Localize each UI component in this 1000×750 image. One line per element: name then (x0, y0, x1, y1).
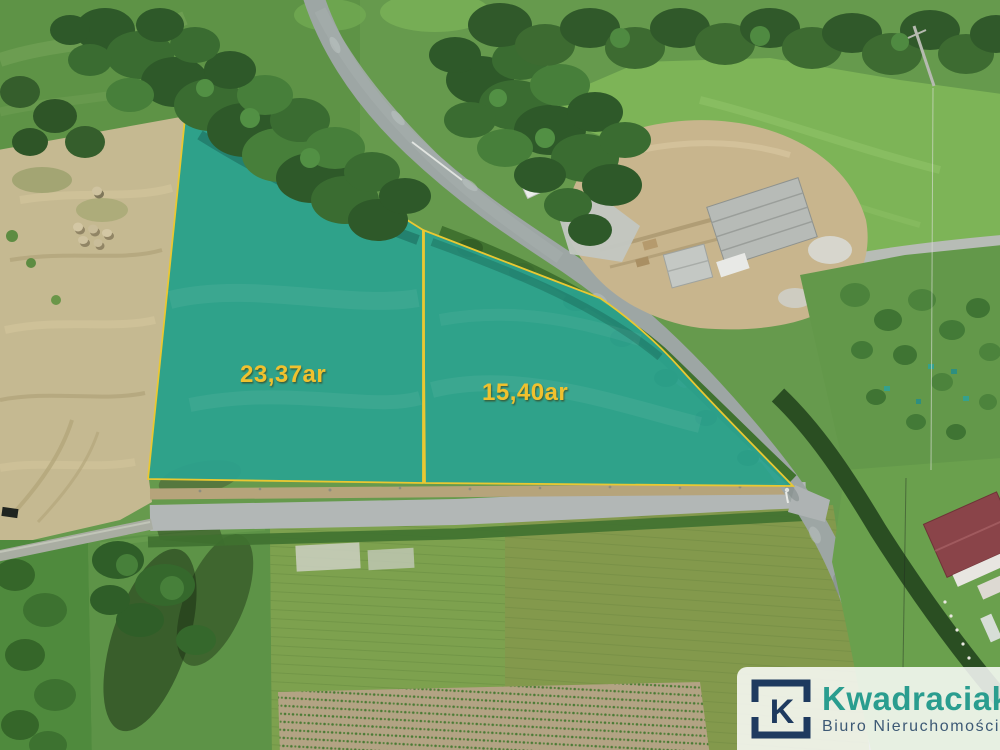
plot-1-area-label: 23,37ar (240, 361, 326, 388)
aerial-photo: 23,37ar 15,40ar K Kwadraciak Biuro Nieru… (0, 0, 1000, 750)
logo-company-name: Kwadraciak (822, 682, 1000, 715)
rubble-pile (808, 236, 852, 264)
logo-k-square-icon: K (751, 679, 811, 739)
logo-text-block: Kwadraciak Biuro Nieruchomości (822, 682, 1000, 735)
logo-subtitle: Biuro Nieruchomości (822, 719, 1000, 735)
agency-logo: K Kwadraciak Biuro Nieruchomości (737, 667, 1000, 750)
aerial-photo-canvas: 23,37ar 15,40ar (0, 0, 1000, 750)
plot-2-area-label: 15,40ar (482, 379, 568, 406)
logo-monogram: K (770, 693, 795, 731)
